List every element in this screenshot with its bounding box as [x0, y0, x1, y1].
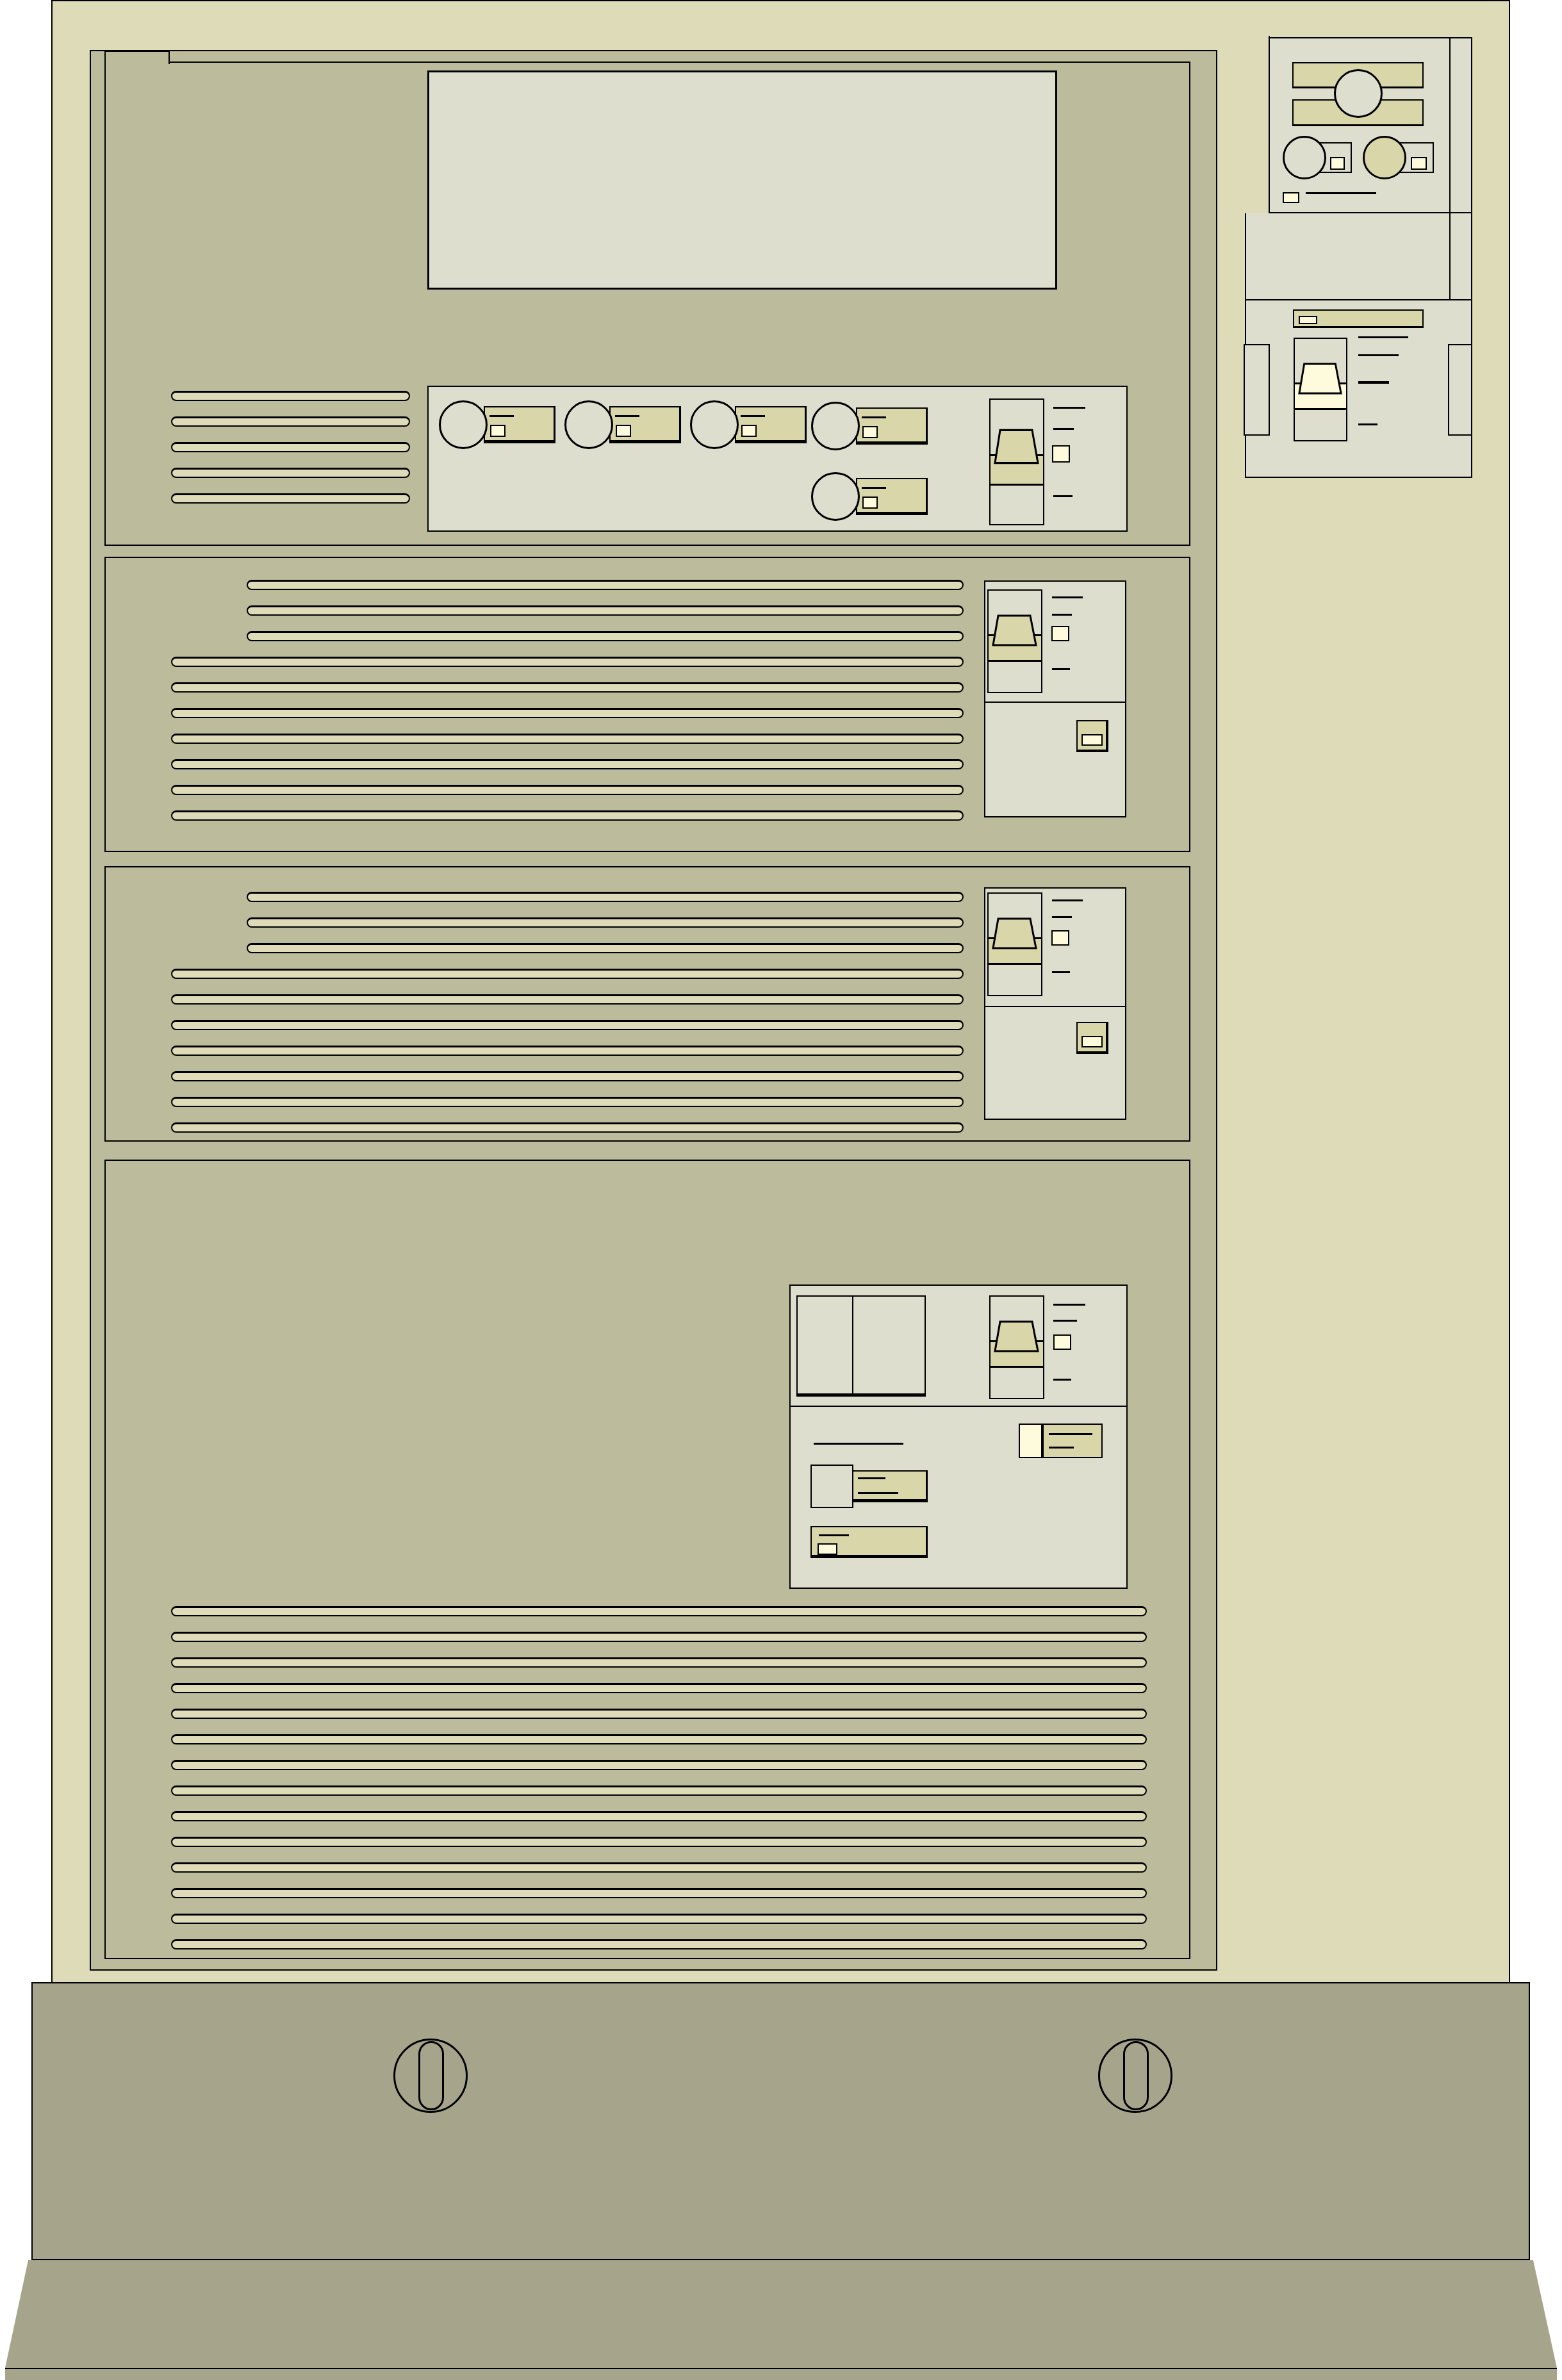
indicator-light — [1051, 930, 1069, 946]
vent-slot — [171, 1888, 1147, 1898]
blank-dual-window — [796, 1295, 926, 1397]
label-line — [1358, 381, 1389, 384]
vent-slot — [171, 416, 410, 427]
rotary-knob-1[interactable] — [439, 400, 488, 449]
vent-slot — [171, 1071, 964, 1081]
side-rotary-control-2[interactable] — [1363, 136, 1406, 179]
rocker-switch-module — [987, 589, 1042, 693]
label-line — [858, 1477, 885, 1479]
label-line — [1052, 916, 1072, 918]
label-line — [1052, 614, 1072, 616]
indicator-light — [862, 497, 878, 509]
rotary-knob-3[interactable] — [690, 400, 739, 449]
button-window — [1081, 1036, 1103, 1047]
indicator-light — [1052, 445, 1070, 463]
label-line — [1053, 407, 1085, 409]
vent-slot — [171, 391, 410, 401]
rotary-knob-4[interactable] — [811, 402, 860, 450]
indicator-light — [741, 425, 757, 437]
indicator-light — [862, 426, 878, 438]
knob-label-plate — [856, 478, 928, 515]
knob-label-plate — [856, 407, 928, 445]
panel-divider — [791, 1406, 1126, 1407]
label-line — [1053, 1379, 1071, 1381]
vent-slot — [247, 892, 964, 902]
vent-slot — [171, 468, 410, 478]
side-panel-right-tab — [1448, 344, 1472, 436]
vent-group-unit1 — [171, 391, 410, 519]
label-line — [615, 415, 639, 417]
latch-slot — [418, 2041, 444, 2110]
indicator-light — [490, 425, 506, 437]
knob-label-plate — [735, 406, 807, 443]
vent-slot — [171, 493, 410, 504]
vent-slot — [247, 631, 964, 641]
vent-slot — [171, 1837, 1147, 1847]
base-skirt — [5, 2260, 1557, 2368]
vent-group-unit3-long — [171, 969, 964, 1148]
label-line — [814, 1443, 903, 1445]
knob-label-plate — [609, 406, 681, 443]
label-line — [1052, 596, 1083, 598]
rack-unit-1-notch — [104, 51, 170, 64]
vent-slot — [171, 442, 410, 452]
panel-divider — [985, 702, 1125, 703]
vent-slot — [247, 605, 964, 616]
rocker-switch-module — [989, 1295, 1044, 1399]
vent-slot — [171, 1632, 1147, 1642]
label-line — [862, 416, 886, 418]
label-line — [1052, 899, 1083, 901]
vent-slot — [171, 1020, 964, 1030]
label-line — [1049, 1447, 1074, 1449]
vent-slot — [171, 734, 964, 744]
label-line — [1052, 668, 1070, 670]
blank-display-panel — [427, 70, 1057, 290]
knob-label-plate — [484, 406, 555, 443]
label-plate — [852, 1470, 928, 1502]
square-button[interactable] — [1076, 1022, 1108, 1054]
latch-slot — [1123, 2041, 1149, 2110]
vent-slot — [171, 1683, 1147, 1693]
button-window — [1081, 734, 1103, 746]
side-panel-left-tab — [1244, 344, 1270, 436]
side-panel-divider — [1245, 299, 1472, 300]
indicator-light — [1283, 192, 1299, 203]
square-button[interactable] — [1076, 720, 1108, 752]
vent-slot — [171, 1709, 1147, 1719]
indicator-light — [616, 425, 631, 437]
base-floor-strip — [5, 2368, 1557, 2380]
vent-slot — [171, 682, 964, 693]
vent-slot — [247, 943, 964, 953]
side-rotary-control-1[interactable] — [1283, 136, 1326, 179]
rocker-switch-paddle[interactable] — [993, 1320, 1040, 1353]
indicator-light — [1330, 157, 1345, 170]
rotary-knob-2[interactable] — [564, 400, 613, 449]
rocker-switch-module — [1294, 338, 1347, 441]
illustration-canvas — [0, 0, 1562, 2380]
rocker-switch-module — [987, 892, 1042, 996]
vent-slot — [171, 1657, 1147, 1668]
label-line — [858, 1492, 898, 1494]
vent-slot — [171, 969, 964, 979]
label-plate — [1042, 1424, 1103, 1458]
vent-group-unit2-long — [171, 657, 964, 836]
vent-group-unit3-short — [247, 892, 964, 969]
label-line — [1052, 971, 1070, 973]
vent-slot — [247, 917, 964, 928]
label-line — [862, 487, 886, 489]
side-panel-cutout — [1244, 36, 1270, 213]
rotary-knob-5[interactable] — [811, 472, 860, 521]
vent-slot — [171, 1862, 1147, 1873]
label-line — [1053, 495, 1073, 497]
label-line — [1049, 1433, 1092, 1435]
vent-slot — [171, 994, 964, 1005]
vent-slot — [171, 785, 964, 795]
vent-slot — [171, 657, 964, 667]
side-panel-divider — [1270, 212, 1472, 213]
vent-slot — [171, 1785, 1147, 1796]
label-line — [1053, 1304, 1085, 1306]
window-divider — [852, 1297, 853, 1393]
indicator-light — [818, 1543, 837, 1555]
label-line — [1306, 192, 1376, 194]
label-line — [1358, 423, 1377, 425]
vent-group-unit2-short — [247, 580, 964, 657]
indicator-light — [1411, 157, 1427, 170]
label-line — [1358, 336, 1408, 338]
label-line — [741, 415, 765, 417]
label-line — [1053, 1320, 1077, 1322]
label-line — [1358, 354, 1399, 356]
vent-slot — [171, 1046, 964, 1056]
rocker-switch-paddle[interactable] — [991, 614, 1039, 647]
vent-slot — [171, 1760, 1147, 1770]
indicator-light — [1019, 1424, 1042, 1458]
vent-slot — [247, 580, 964, 590]
vent-slot — [171, 708, 964, 718]
rocker-switch-paddle[interactable] — [1297, 362, 1344, 395]
vent-slot — [171, 1097, 964, 1107]
vent-slot — [171, 1939, 1147, 1949]
quarter-turn-latch-right[interactable] — [1098, 2039, 1172, 2113]
panel-divider — [985, 1006, 1125, 1007]
key-switch[interactable] — [1334, 69, 1383, 118]
vent-slot — [171, 1734, 1147, 1744]
quarter-turn-latch-left[interactable] — [393, 2039, 468, 2113]
vent-slot — [171, 810, 964, 821]
indicator-light — [1053, 1334, 1071, 1350]
vent-slot — [171, 759, 964, 769]
vent-slot — [171, 1914, 1147, 1924]
vent-group-unit4 — [171, 1606, 1147, 1965]
blank-window — [810, 1465, 853, 1508]
label-line — [489, 415, 514, 417]
rocker-switch-paddle[interactable] — [993, 428, 1040, 465]
label-line — [1053, 428, 1074, 430]
vent-slot — [171, 1606, 1147, 1616]
vent-slot — [171, 1811, 1147, 1821]
side-panel-divider — [1449, 37, 1451, 299]
rocker-switch-paddle[interactable] — [991, 917, 1039, 950]
label-line — [819, 1534, 849, 1536]
indicator-light — [1299, 316, 1317, 324]
vent-slot — [171, 1122, 964, 1133]
indicator-light — [1051, 626, 1069, 641]
rocker-switch-module — [989, 398, 1044, 525]
base-pedestal — [31, 1982, 1530, 2260]
